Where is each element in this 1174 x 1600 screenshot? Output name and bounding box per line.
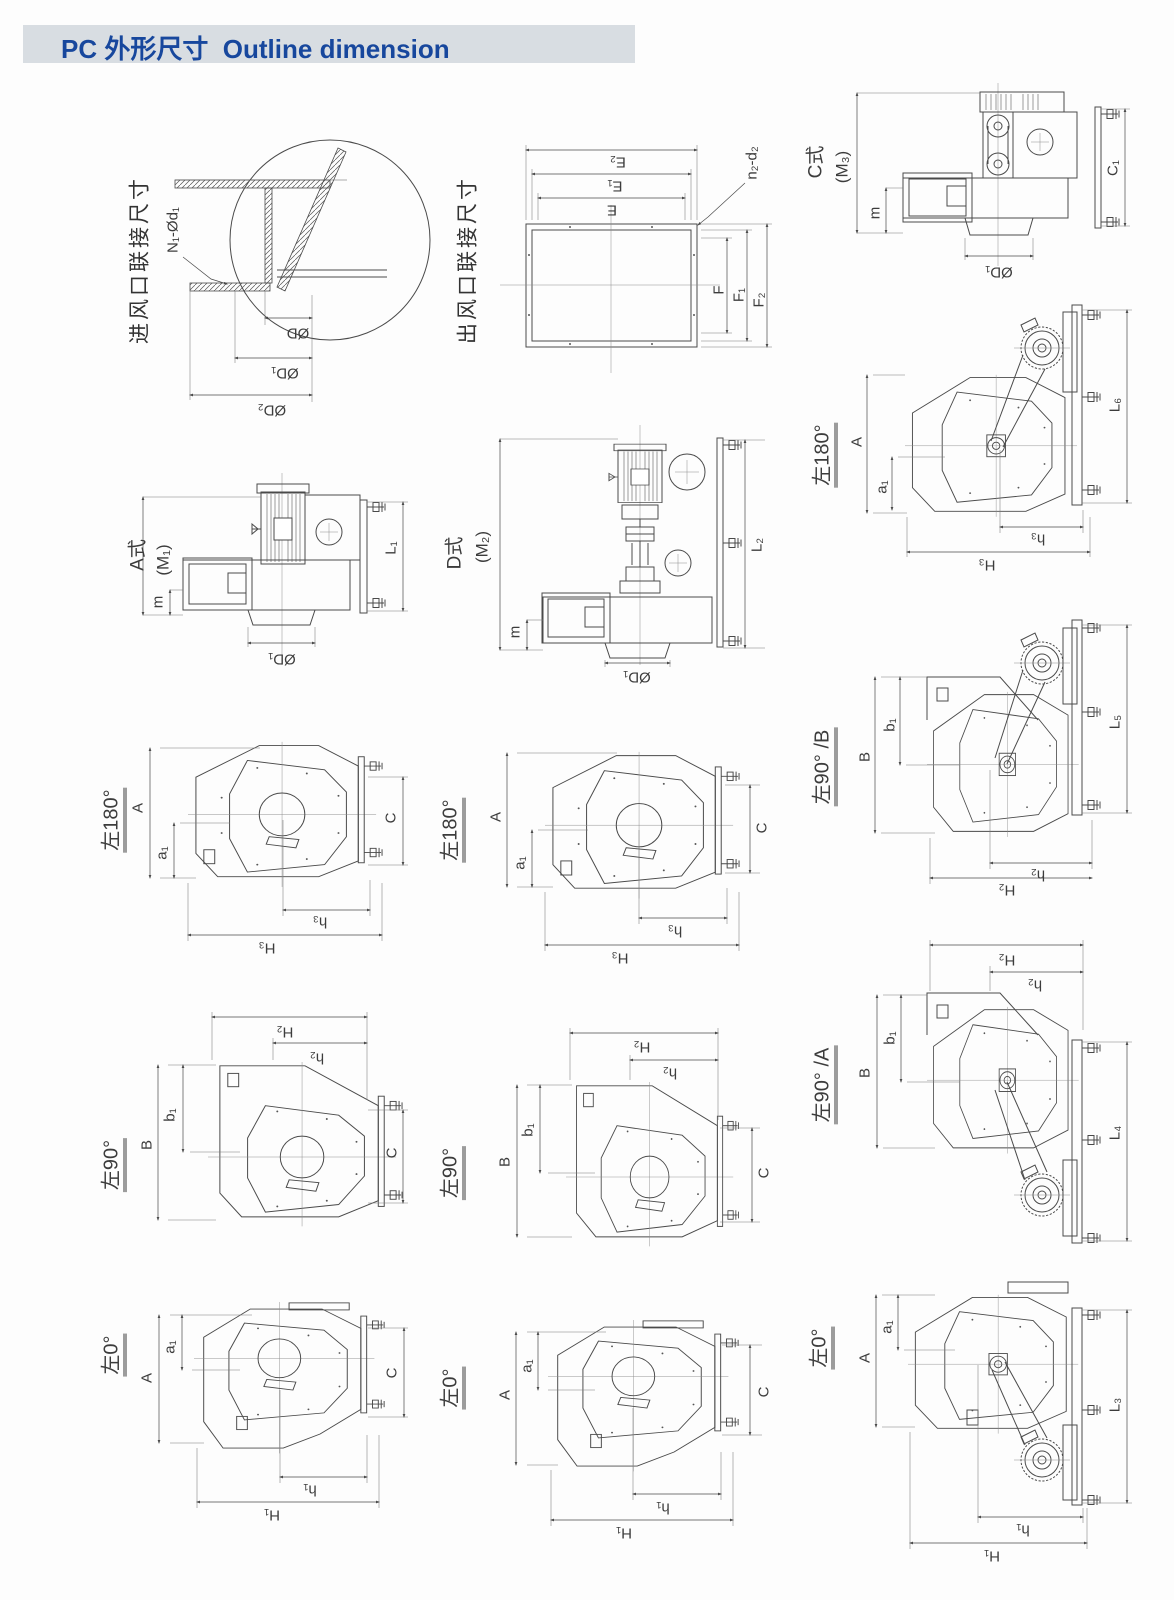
type-d-l2-label: L₂ bbox=[750, 538, 765, 552]
side-90b-b-label: B bbox=[858, 752, 873, 762]
front-0-mid-a-label: A bbox=[498, 1390, 513, 1400]
front-180-left-h3-label: h₃ bbox=[313, 915, 327, 930]
front-0-mid-angle: 左0° bbox=[441, 1366, 466, 1409]
front-90-left-b1-label: b₁ bbox=[163, 1108, 178, 1121]
inlet-d1-label: ØD₁ bbox=[271, 366, 299, 381]
front-90-mid-angle: 左90° bbox=[441, 1146, 466, 1200]
front-0-left-h1-label: h₁ bbox=[303, 1483, 316, 1498]
drawing-front-180-left: 左180° A a₁ C h₃ H₃ bbox=[100, 720, 410, 975]
type-d-code: (M₂) bbox=[474, 531, 491, 563]
front-90-left-h2-label: h₂ bbox=[310, 1051, 324, 1066]
page: PC 外形尺寸 Outline dimension 进风口联接尺寸 N₁-Ød₁… bbox=[0, 0, 1174, 1600]
front-0-left-angle: 左0° bbox=[102, 1333, 127, 1376]
inlet-holes-label: N₁-Ød₁ bbox=[166, 207, 181, 253]
front-0-left-c-label: C bbox=[385, 1368, 400, 1379]
section-title: PC 外形尺寸 Outline dimension bbox=[61, 29, 450, 66]
drawing-front-90-left: 左90° B b₁ C H₂ h₂ bbox=[100, 990, 410, 1255]
drawing-side-90a: 左90° /A B b₁ L₄ H₂ h₂ bbox=[795, 900, 1174, 1245]
outlet-e-label: E bbox=[607, 203, 617, 218]
type-c-name: C式 bbox=[807, 146, 826, 179]
drawing-side-0: 左0° A a₁ L₃ h₁ H₁ bbox=[795, 1250, 1174, 1600]
front-90-left-diagram bbox=[100, 990, 410, 1255]
section-title-zh: PC 外形尺寸 bbox=[61, 34, 208, 64]
front-180-mid-a-label: A bbox=[489, 812, 504, 822]
front-0-mid-H1-label: H₁ bbox=[616, 1526, 632, 1541]
front-0-left-a1-label: a₁ bbox=[163, 1340, 178, 1353]
front-180-mid-diagram bbox=[420, 725, 775, 975]
type-d-name: D式 bbox=[446, 537, 465, 570]
front-0-left-a-label: A bbox=[140, 1373, 155, 1383]
front-90-mid-b-label: B bbox=[498, 1157, 513, 1167]
section-title-en: Outline dimension bbox=[223, 34, 450, 64]
front-0-mid-a1-label: a₁ bbox=[520, 1359, 535, 1372]
side-0-l3-label: L₃ bbox=[1108, 1398, 1123, 1412]
front-0-mid-h1-label: h₁ bbox=[656, 1501, 669, 1516]
side-180a-a1-label: a₁ bbox=[875, 480, 890, 493]
front-180-left-diagram bbox=[100, 720, 410, 975]
type-d-d1-label: ØD₁ bbox=[623, 670, 651, 685]
drawing-front-0-left: 左0° A a₁ C h₁ H₁ bbox=[100, 1270, 410, 1575]
type-a-l1-label: L₁ bbox=[384, 541, 399, 554]
outlet-f2-label: F₂ bbox=[752, 293, 767, 308]
front-90-mid-b1-label: b₁ bbox=[521, 1123, 536, 1136]
front-180-left-H3-label: H₃ bbox=[259, 941, 276, 956]
front-90-left-angle: 左90° bbox=[102, 1138, 127, 1192]
side-90a-b-label: B bbox=[858, 1068, 873, 1078]
side-90b-diagram bbox=[795, 600, 1174, 895]
inlet-d2-label: ØD₂ bbox=[258, 403, 286, 418]
side-0-a-label: A bbox=[858, 1353, 873, 1363]
drawing-side-180a: 左180° A a₁ L₆ h₃ H₃ bbox=[795, 295, 1174, 585]
side-0-H1-label: H₁ bbox=[984, 1549, 1000, 1564]
side-0-a1-label: a₁ bbox=[880, 1320, 895, 1333]
front-180-left-c-label: C bbox=[384, 813, 399, 824]
side-0-angle: 左0° bbox=[810, 1326, 835, 1369]
side-180a-H3-label: H₃ bbox=[979, 558, 996, 573]
side-90a-h2-label: h₂ bbox=[1028, 978, 1042, 993]
front-180-mid-h3-label: h₃ bbox=[668, 924, 682, 939]
front-0-left-diagram bbox=[100, 1270, 410, 1575]
inlet-title: 进风口联接尺寸 bbox=[130, 176, 151, 344]
front-90-mid-c-label: C bbox=[757, 1168, 772, 1179]
type-c-c1-label: C₁ bbox=[1106, 160, 1121, 176]
outlet-f1-label: F₁ bbox=[732, 288, 747, 302]
front-180-left-a1-label: a₁ bbox=[155, 846, 170, 859]
front-180-mid-a1-label: a₁ bbox=[513, 856, 528, 869]
side-180a-a-label: A bbox=[850, 437, 865, 447]
front-0-mid-c-label: C bbox=[757, 1387, 772, 1398]
front-180-left-angle: 左180° bbox=[102, 787, 127, 852]
drawing-side-90b: 左90° /B B b₁ L₅ h₂ H₂ bbox=[795, 600, 1174, 895]
side-90a-l4-label: L₄ bbox=[1108, 1126, 1123, 1140]
front-180-mid-c-label: C bbox=[755, 823, 770, 834]
outlet-e1-label: E₁ bbox=[607, 179, 622, 194]
outlet-title: 出风口联接尺寸 bbox=[458, 176, 479, 344]
outlet-e2-label: E₂ bbox=[610, 155, 626, 170]
side-90a-diagram bbox=[795, 900, 1174, 1245]
drawing-front-0-mid: 左0° A a₁ C h₁ H₁ bbox=[420, 1290, 775, 1595]
outlet-holes-label: n₂-d₂ bbox=[745, 146, 760, 179]
front-180-mid-angle: 左180° bbox=[441, 797, 466, 862]
inlet-diagram bbox=[115, 95, 445, 440]
type-a-code: (M₁) bbox=[155, 544, 172, 575]
type-c-m-label: m bbox=[868, 207, 883, 220]
front-0-mid-diagram bbox=[420, 1290, 775, 1595]
type-c-code: (M₃) bbox=[834, 151, 851, 183]
drawing-front-90-mid: 左90° B b₁ C H₂ h₂ bbox=[420, 1000, 775, 1260]
side-180a-l6-label: L₆ bbox=[1108, 398, 1123, 412]
front-90-left-H2-label: H₂ bbox=[277, 1025, 294, 1040]
side-90a-angle: 左90° /A bbox=[813, 1046, 838, 1125]
type-d-m-label: m bbox=[508, 626, 523, 639]
front-90-left-b-label: B bbox=[140, 1140, 155, 1150]
side-180a-h3-label: h₃ bbox=[1031, 532, 1045, 547]
side-90b-H2-label: H₂ bbox=[999, 883, 1016, 898]
front-90-mid-h2-label: h₂ bbox=[663, 1066, 677, 1081]
front-180-mid-H3-label: H₃ bbox=[612, 951, 629, 966]
front-0-left-H1-label: H₁ bbox=[264, 1508, 280, 1523]
type-c-d1-label: ØD₁ bbox=[985, 265, 1013, 280]
drawing-front-180-mid: 左180° A a₁ C h₃ H₃ bbox=[420, 725, 775, 975]
side-90a-H2-label: H₂ bbox=[999, 953, 1016, 968]
outlet-f-label: F bbox=[712, 285, 727, 294]
inlet-d-label: ØD bbox=[287, 326, 310, 341]
drawing-inlet-connection: 进风口联接尺寸 N₁-Ød₁ ØD ØD₁ ØD₂ bbox=[115, 95, 445, 440]
side-90b-h2-label: h₂ bbox=[1031, 868, 1045, 883]
side-90b-b1-label: b₁ bbox=[883, 718, 898, 731]
front-90-left-c-label: C bbox=[385, 1148, 400, 1159]
drawing-type-d: D式 (M₂) m ØD₁ L₂ bbox=[430, 415, 775, 685]
type-a-name: A式 bbox=[129, 539, 148, 571]
front-180-left-a-label: A bbox=[131, 803, 146, 813]
side-90b-l5-label: L₅ bbox=[1108, 715, 1123, 729]
outlet-diagram bbox=[440, 105, 780, 405]
side-180a-angle: 左180° bbox=[813, 422, 838, 487]
side-0-h1-label: h₁ bbox=[1016, 1523, 1029, 1538]
side-90b-angle: 左90° /B bbox=[813, 728, 838, 807]
drawing-outlet-connection: 出风口联接尺寸 E₂ E₁ E n₂-d₂ F F₁ F₂ bbox=[440, 105, 780, 405]
type-a-m-label: m bbox=[151, 596, 166, 609]
drawing-type-a: A式 (M₁) m ØD₁ L₁ bbox=[125, 455, 420, 680]
section-header: PC 外形尺寸 Outline dimension bbox=[23, 25, 635, 63]
type-a-d1-label: ØD₁ bbox=[268, 652, 296, 667]
front-90-mid-diagram bbox=[420, 1000, 775, 1260]
drawing-type-c: C式 (M₃) m ØD₁ C₁ bbox=[795, 78, 1174, 300]
front-90-mid-H2-label: H₂ bbox=[634, 1040, 651, 1055]
side-90a-b1-label: b₁ bbox=[883, 1031, 898, 1044]
